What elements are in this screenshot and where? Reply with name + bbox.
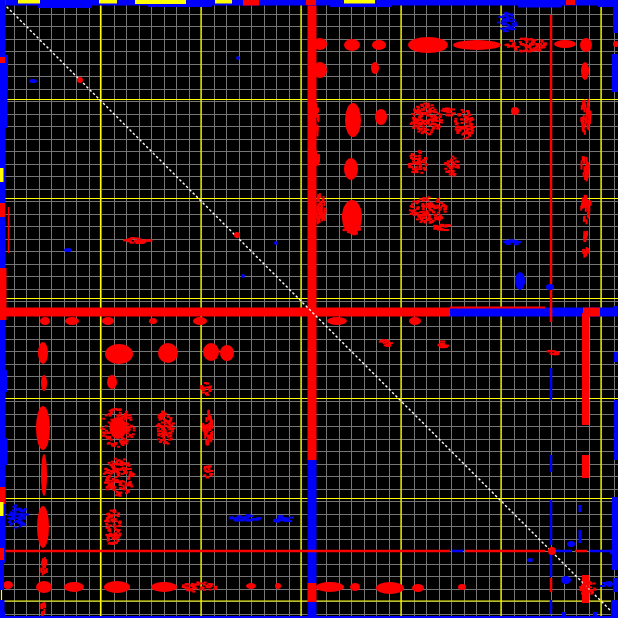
spot-positive — [102, 317, 114, 325]
correlation-map — [0, 0, 618, 618]
spot-negative — [64, 248, 72, 252]
edge-band-left — [0, 560, 4, 590]
spot-positive — [275, 583, 281, 589]
spot-positive — [453, 40, 501, 50]
spot-positive — [36, 406, 50, 450]
spot-positive — [580, 38, 592, 52]
edge-band-right — [614, 43, 618, 46]
edge-band-top — [135, 0, 186, 4]
edge-band-left — [0, 487, 6, 504]
spot-positive — [327, 317, 347, 325]
spot-positive — [372, 40, 386, 50]
spot-positive — [65, 317, 79, 325]
edge-band-left — [0, 203, 5, 217]
spot-positive — [77, 77, 83, 83]
edge-band-left — [0, 57, 5, 63]
spot-positive — [105, 344, 133, 364]
edge-band-left — [0, 88, 8, 128]
spot-negative — [527, 558, 533, 562]
spot-positive — [41, 375, 47, 391]
spot-positive — [412, 584, 424, 592]
spot-negative — [567, 541, 575, 547]
spot-positive — [64, 582, 84, 592]
spot-positive — [408, 37, 448, 53]
edge-band-left — [0, 548, 4, 560]
spot-positive — [511, 107, 519, 115]
spot-positive — [344, 39, 360, 51]
spot-positive — [193, 317, 207, 325]
edge-band-top — [243, 0, 259, 6]
edge-band-bottom — [0, 612, 5, 618]
spot-positive — [104, 581, 130, 593]
spot-positive — [313, 38, 327, 50]
spot-positive — [344, 158, 358, 180]
edge-band-top — [18, 0, 40, 4]
edge-band-right — [613, 0, 618, 33]
spot-positive — [409, 317, 421, 325]
spot-positive — [548, 547, 556, 555]
edge-band-top — [99, 0, 117, 4]
edge-band-right — [613, 578, 618, 592]
edge-band-right — [614, 352, 618, 362]
spot-positive — [36, 581, 52, 593]
edge-band-right — [613, 306, 618, 316]
edge-band-bottom — [593, 612, 597, 618]
spot-negative — [546, 284, 554, 290]
edge-band-right — [612, 54, 618, 92]
edge-band-top — [306, 0, 316, 5]
spot-positive — [40, 317, 50, 325]
spot-negative — [274, 241, 278, 245]
spot-positive — [345, 103, 361, 137]
edge-band-left — [0, 502, 4, 516]
edge-band-bottom — [309, 612, 316, 618]
spot-positive — [350, 583, 360, 591]
edge-band-top — [344, 0, 375, 4]
spot-positive — [458, 584, 466, 590]
spot-positive — [313, 62, 327, 78]
edge-band-left — [0, 370, 7, 392]
edge-band-left — [0, 438, 8, 465]
spot-positive — [38, 342, 48, 364]
edge-band-right — [612, 497, 618, 570]
edge-band-top — [566, 0, 575, 5]
spot-positive — [376, 582, 404, 594]
spot-positive — [158, 343, 178, 363]
edge-band-top — [38, 0, 92, 8]
spot-positive — [375, 109, 387, 125]
spot-positive — [149, 318, 157, 324]
spot-positive — [3, 581, 13, 589]
spot-positive — [234, 232, 240, 238]
edge-band-bottom — [612, 612, 618, 618]
edge-band-top — [215, 0, 232, 4]
spot-negative — [241, 274, 245, 278]
spot-positive — [41, 454, 47, 496]
edge-band-right — [614, 400, 618, 460]
spot-positive — [554, 40, 576, 48]
spot-positive — [203, 343, 219, 361]
spot-positive — [371, 62, 379, 74]
spot-positive — [316, 582, 344, 592]
correlation-map-canvas — [0, 0, 618, 618]
edge-band-top — [518, 0, 562, 8]
spot-positive — [581, 62, 589, 80]
spot-positive — [220, 345, 234, 361]
spot-positive — [37, 506, 49, 548]
edge-band-bottom — [562, 612, 566, 618]
spot-positive — [246, 583, 256, 589]
edge-band-left — [0, 268, 7, 320]
spot-negative — [515, 272, 525, 290]
edge-band-left — [0, 168, 4, 182]
spot-negative — [236, 56, 240, 60]
spot-positive — [107, 375, 117, 389]
spot-negative — [29, 79, 37, 83]
spot-positive — [151, 582, 177, 592]
spot-negative — [561, 576, 571, 584]
